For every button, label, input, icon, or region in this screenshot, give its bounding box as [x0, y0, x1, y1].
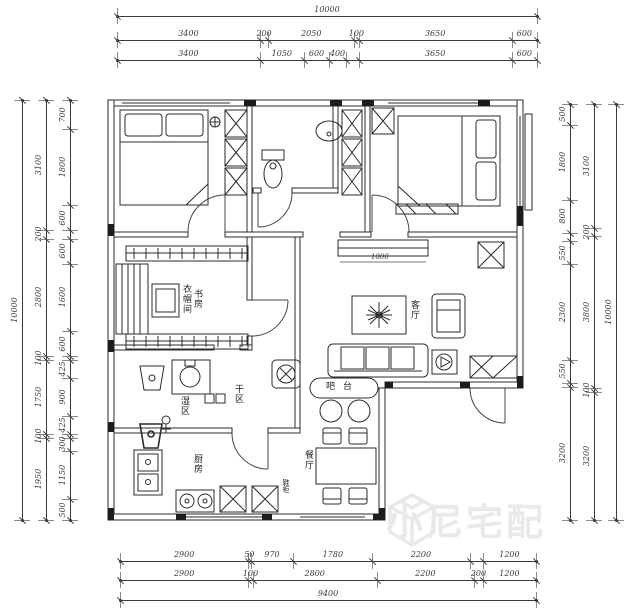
label-cloakroom-study: 衣帽间 书房 [181, 284, 202, 314]
kitchen-cabinets [220, 486, 278, 512]
coffee-table [352, 296, 406, 334]
label-shoe-cabinet: 鞋柜 [282, 479, 290, 493]
label-dining-room: 餐厅 [303, 450, 313, 470]
bedroom1-wardrobe [225, 110, 247, 195]
bedroom2-bed [372, 108, 500, 214]
kitchen-sink [134, 450, 162, 495]
watermark-cube-icon [386, 492, 438, 548]
label-wet-area: 湿区 [179, 396, 189, 416]
dining-table [316, 428, 376, 504]
plant-icon [366, 302, 392, 328]
watermark: 小尼宅配 [386, 492, 546, 546]
wall-cabinet [478, 242, 504, 268]
bedroom1-bed [120, 110, 220, 205]
label-study: 书房 [192, 289, 202, 314]
label-bar: 吧台 [326, 382, 360, 392]
sofa [328, 344, 428, 377]
label-cloakroom: 衣帽间 [181, 284, 191, 314]
bedroom2-closet [342, 110, 362, 195]
armchair [432, 294, 465, 338]
cloakroom-shelf [116, 264, 148, 334]
label-dry-area: 干区 [233, 384, 243, 404]
entry-shoe-cabinet [470, 356, 517, 378]
gas-stove [176, 490, 214, 512]
floor-plan-canvas: 1000034002002050100365060034001050600400… [0, 0, 640, 609]
tv-symbol [432, 350, 457, 374]
shower-tray [140, 366, 164, 390]
label-living-room: 客厅 [409, 300, 419, 320]
toilet [262, 150, 284, 188]
study-desk [152, 284, 179, 317]
label-kitchen: 厨房 [192, 454, 202, 474]
internal-dim-1800: 1800 [371, 253, 389, 261]
